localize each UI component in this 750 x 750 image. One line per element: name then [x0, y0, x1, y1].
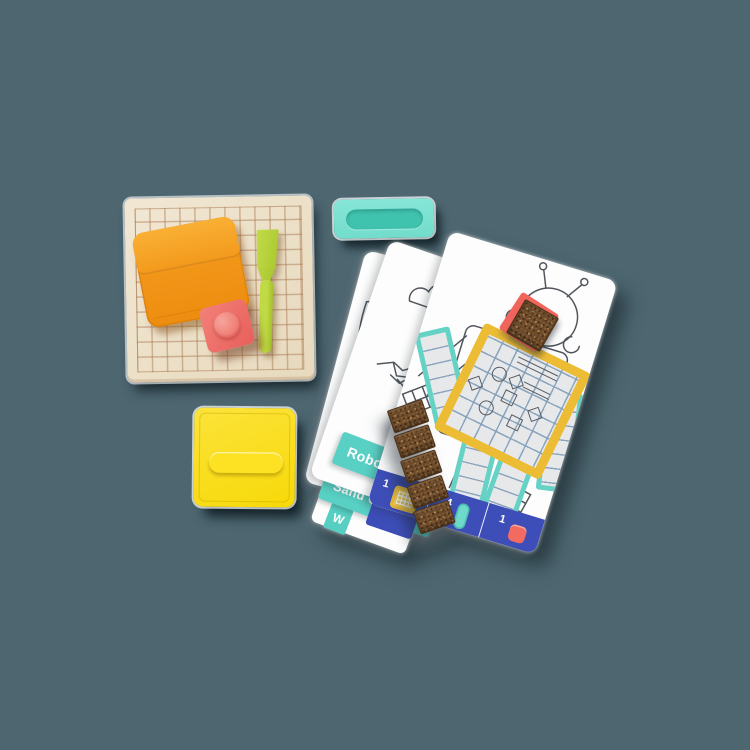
- product-photo-scene: W Sand Castle: [0, 0, 750, 750]
- square-piece-icon: [507, 523, 528, 544]
- grid-mark-square: [506, 414, 523, 431]
- square-piece-count: 1: [498, 513, 507, 526]
- grid-mark-circle: [476, 398, 496, 418]
- grid-mark-line: [518, 356, 558, 376]
- strip-piece-icon: [452, 502, 471, 530]
- activity-card-stack: W Sand Castle: [0, 0, 750, 750]
- grid-mark-diamond: [468, 376, 483, 391]
- grid-mark-circle: [489, 364, 509, 384]
- grid-mark-square: [500, 389, 517, 406]
- grid-piece-count: 1: [381, 477, 390, 490]
- grid-mark-diamond: [509, 374, 524, 389]
- grid-mark-diamond: [527, 407, 542, 422]
